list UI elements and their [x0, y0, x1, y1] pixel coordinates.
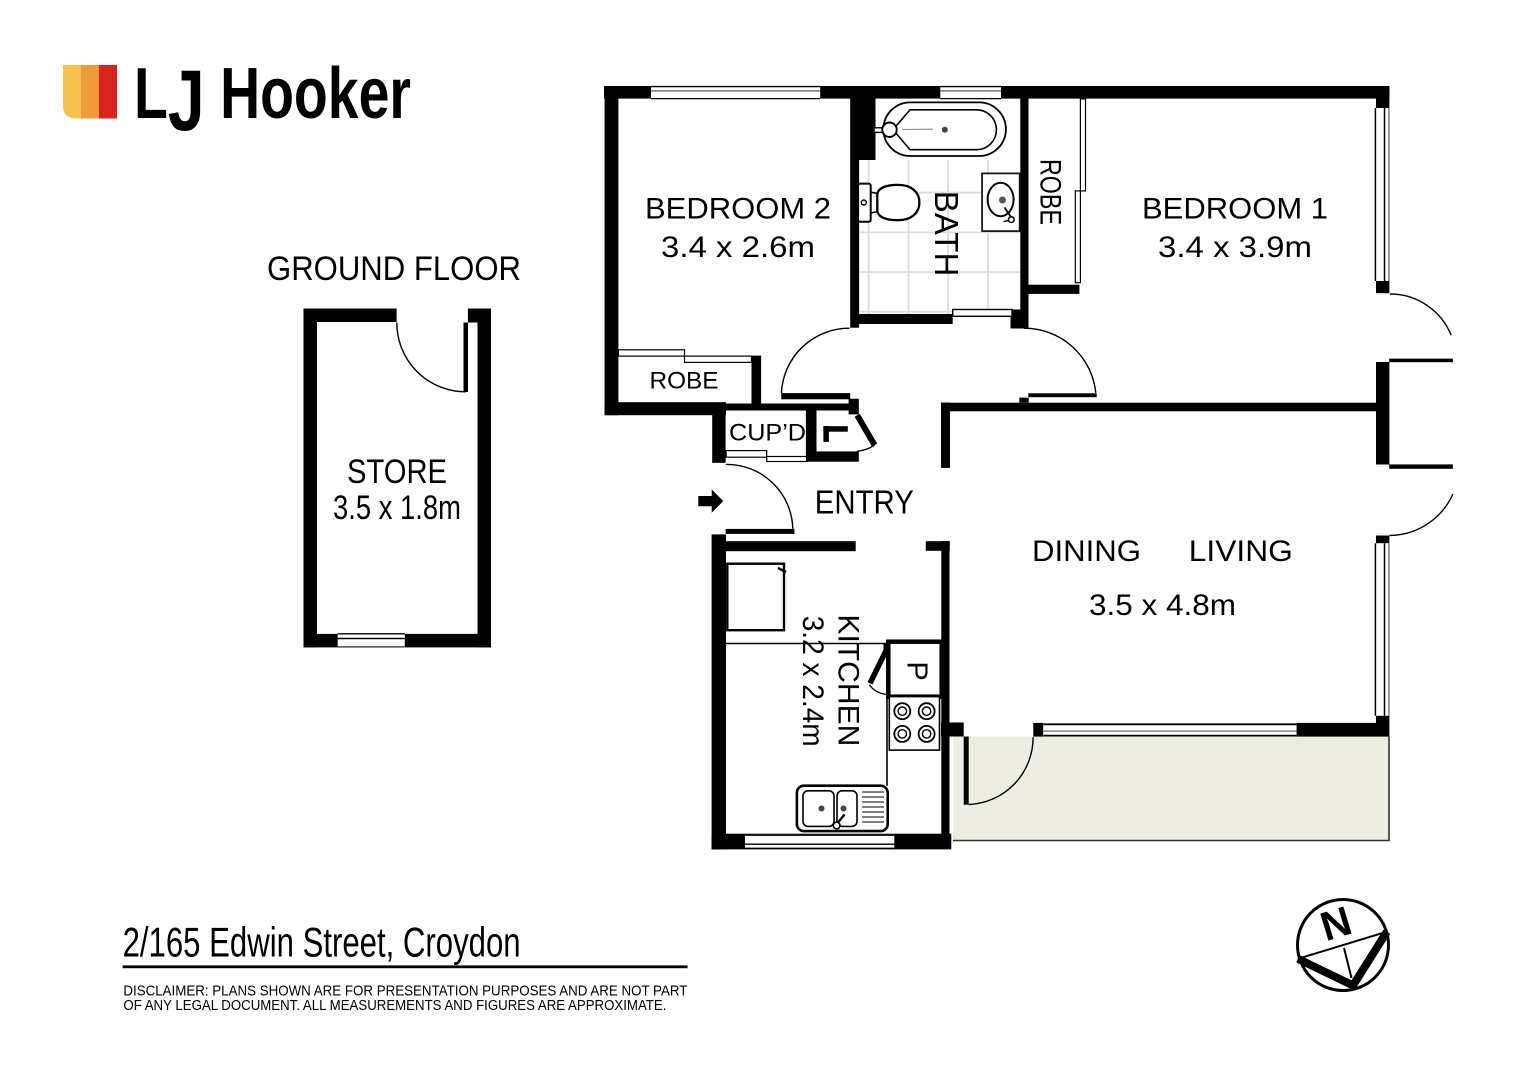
svg-text:3.5 x 1.8m: 3.5 x 1.8m	[333, 489, 461, 527]
svg-text:P: P	[901, 661, 933, 680]
svg-text:3.4 x 3.9m: 3.4 x 3.9m	[1158, 231, 1312, 264]
svg-text:KITCHEN: KITCHEN	[832, 614, 865, 746]
svg-text:ROBE: ROBE	[1033, 159, 1066, 225]
svg-text:3.5 x 4.8m: 3.5 x 4.8m	[1089, 589, 1236, 622]
svg-text:BEDROOM 1: BEDROOM 1	[1142, 193, 1328, 226]
svg-text:STORE: STORE	[347, 453, 447, 491]
svg-text:GROUND FLOOR: GROUND FLOOR	[267, 250, 521, 288]
svg-text:OF ANY LEGAL DOCUMENT. ALL MEA: OF ANY LEGAL DOCUMENT. ALL MEASUREMENTS …	[123, 998, 666, 1014]
svg-text:BEDROOM 2: BEDROOM 2	[645, 193, 831, 226]
svg-text:3.4 x 2.6m: 3.4 x 2.6m	[661, 231, 815, 264]
svg-text:ROBE: ROBE	[650, 368, 719, 395]
svg-text:2/165 Edwin Street, Croydon: 2/165 Edwin Street, Croydon	[123, 919, 521, 966]
svg-text:DINING: DINING	[1032, 535, 1141, 568]
svg-text:CUP’D: CUP’D	[729, 420, 806, 447]
svg-text:ENTRY: ENTRY	[815, 484, 914, 521]
svg-text:3.2 x 2.4m: 3.2 x 2.4m	[796, 616, 829, 747]
svg-text:LIVING: LIVING	[1189, 535, 1293, 568]
svg-text:BATH: BATH	[928, 191, 965, 277]
